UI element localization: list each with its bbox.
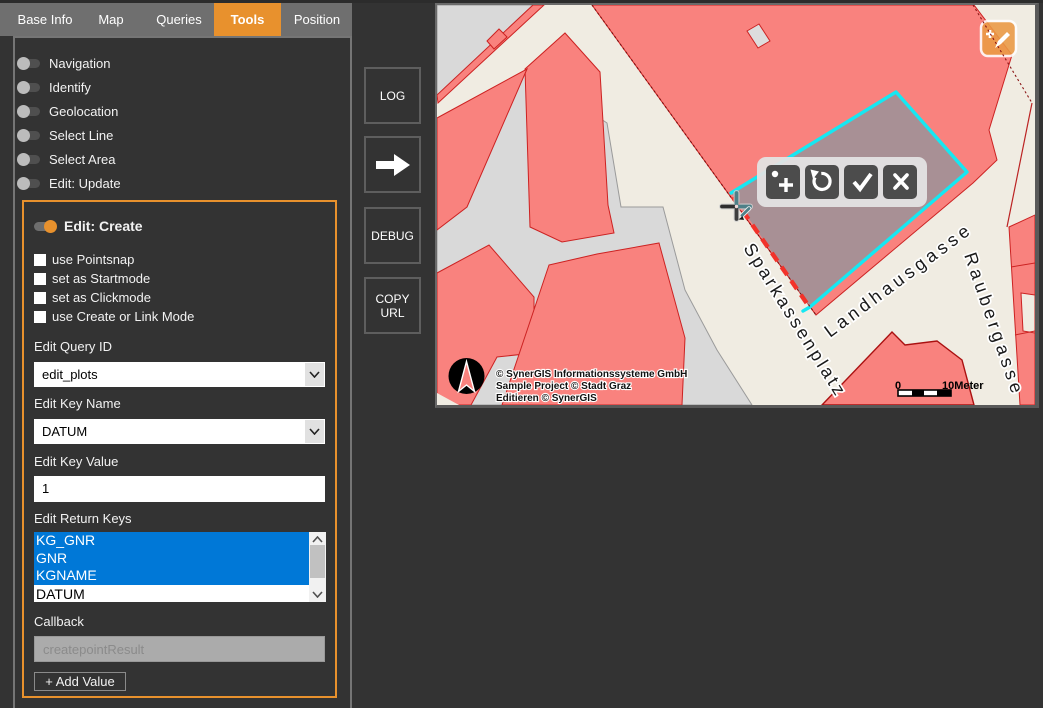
svg-text:Sample Project © Stadt Graz: Sample Project © Stadt Graz — [496, 381, 631, 392]
svg-text:© SynerGIS Informationssysteme: © SynerGIS Informationssysteme GmbH — [496, 369, 687, 380]
svg-text:Editieren © SynerGIS: Editieren © SynerGIS — [496, 393, 597, 404]
